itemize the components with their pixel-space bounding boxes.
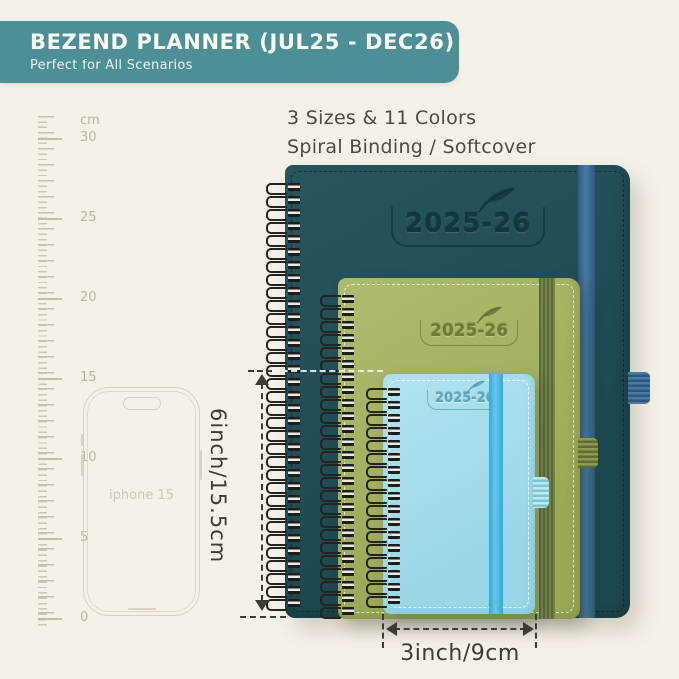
coil-wire-loop: [320, 399, 341, 411]
coil-punch-hole: [342, 594, 354, 602]
spiral-coil: [320, 373, 356, 382]
coil-punch-hole: [342, 607, 354, 615]
phone-outline: iphone 15: [83, 387, 200, 616]
spiral-coil: [366, 453, 402, 462]
coil-wire-loop: [266, 248, 287, 260]
coil-wire-loop: [266, 482, 287, 494]
coil-wire-loop: [366, 414, 387, 426]
spiral-coil: [320, 386, 356, 395]
spiral-coil: [266, 573, 302, 582]
spiral-coil: [320, 607, 356, 616]
spiral-coil: [266, 547, 302, 556]
spiral-coil: [266, 274, 302, 283]
spiral-coil: [320, 438, 356, 447]
spiral-coil: [320, 451, 356, 460]
coil-punch-hole: [288, 222, 300, 230]
ruler-major-tick: 10: [38, 458, 62, 460]
arrow-down-icon: [255, 600, 269, 611]
coil-punch-hole: [388, 388, 400, 396]
spiral-coil: [320, 529, 356, 538]
coil-wire-loop: [366, 479, 387, 491]
spiral-coil: [266, 391, 302, 400]
arrow-up-icon: [255, 374, 269, 385]
phone-volume-button: [81, 454, 84, 476]
coil-wire-loop: [366, 466, 387, 478]
coil-punch-hole: [342, 373, 354, 381]
spiral-coil: [320, 295, 356, 304]
coil-wire-loop: [266, 443, 287, 455]
coil-punch-hole: [388, 518, 400, 526]
coil-punch-hole: [288, 235, 300, 243]
stitching: [389, 380, 529, 608]
coil-wire-loop: [320, 295, 341, 307]
page-title: BEZEND PLANNER (JUL25 - DEC26): [30, 30, 459, 54]
spiral-coil: [320, 555, 356, 564]
spiral-coil: [320, 516, 356, 525]
spiral-coil: [320, 464, 356, 473]
coil-wire-loop: [266, 235, 287, 247]
coil-punch-hole: [342, 386, 354, 394]
coil-wire-loop: [320, 542, 341, 554]
spiral-coil: [320, 321, 356, 330]
spiral-coil: [366, 544, 402, 553]
coil-wire-loop: [266, 456, 287, 468]
year-emboss-medium: 2025-26: [420, 320, 518, 346]
spiral-coil: [320, 399, 356, 408]
spiral-coil: [266, 521, 302, 530]
coil-punch-hole: [342, 464, 354, 472]
coil-wire-loop: [266, 313, 287, 325]
coil-punch-hole: [342, 529, 354, 537]
intro-text: 3 Sizes & 11 Colors Spiral Binding / Sof…: [287, 107, 536, 158]
arrow-right-icon: [523, 622, 534, 636]
coil-wire-loop: [366, 440, 387, 452]
height-dimension-label: 6inch/15.5cm: [206, 408, 230, 588]
spiral-coil: [266, 599, 302, 608]
coil-punch-hole: [342, 321, 354, 329]
coil-wire-loop: [266, 391, 287, 403]
coil-punch-hole: [288, 352, 300, 360]
ruler-label-20: 20: [80, 290, 116, 305]
spiral-coil: [366, 492, 402, 501]
coil-wire-loop: [266, 183, 287, 195]
height-dimension-line: [261, 383, 263, 601]
coil-wire-loop: [320, 581, 341, 593]
spiral-coil: [366, 466, 402, 475]
coil-wire-loop: [366, 531, 387, 543]
spiral-coil: [320, 334, 356, 343]
spiral-coil: [266, 235, 302, 244]
intro-line-binding: Spiral Binding / Softcover: [287, 136, 536, 158]
spiral-coil: [266, 209, 302, 218]
spiral-coil: [366, 427, 402, 436]
coil-punch-hole: [288, 443, 300, 451]
coil-punch-hole: [288, 287, 300, 295]
coil-punch-hole: [288, 560, 300, 568]
spiral-coil: [366, 531, 402, 540]
coil-punch-hole: [342, 438, 354, 446]
coil-wire-loop: [320, 490, 341, 502]
coil-wire-loop: [366, 544, 387, 556]
coil-wire-loop: [320, 503, 341, 515]
coil-wire-loop: [320, 555, 341, 567]
coil-wire-loop: [266, 495, 287, 507]
coil-punch-hole: [342, 399, 354, 407]
coil-wire-loop: [266, 508, 287, 520]
ruler-label-25: 25: [80, 210, 116, 225]
coil-wire-loop: [320, 308, 341, 320]
coil-wire-loop: [266, 560, 287, 572]
spiral-coil: [266, 443, 302, 452]
extension-line-top: [248, 370, 272, 372]
coil-punch-hole: [288, 495, 300, 503]
coil-wire-loop: [320, 607, 341, 619]
coil-wire-loop: [266, 196, 287, 208]
coil-punch-hole: [342, 360, 354, 368]
pen-loop-large: [628, 372, 650, 404]
elastic-band-large: [578, 165, 595, 618]
coil-punch-hole: [342, 555, 354, 563]
coil-wire-loop: [366, 505, 387, 517]
spiral-coil: [320, 490, 356, 499]
spiral-coil: [266, 404, 302, 413]
spiral-coil: [320, 542, 356, 551]
coil-wire-loop: [320, 438, 341, 450]
spiral-coil: [266, 261, 302, 270]
coil-punch-hole: [342, 477, 354, 485]
spiral-coil: [266, 378, 302, 387]
coil-punch-hole: [342, 490, 354, 498]
coil-punch-hole: [288, 404, 300, 412]
spiral-coil: [320, 581, 356, 590]
coil-punch-hole: [388, 414, 400, 422]
phone-power-button: [200, 450, 203, 480]
page-subtitle: Perfect for All Scenarios: [30, 58, 459, 73]
spiral-coil: [266, 586, 302, 595]
coil-punch-hole: [288, 508, 300, 516]
coil-wire-loop: [320, 594, 341, 606]
coil-wire-loop: [266, 521, 287, 533]
coil-wire-loop: [366, 453, 387, 465]
coil-punch-hole: [388, 531, 400, 539]
coil-wire-loop: [266, 378, 287, 390]
spiral-coil: [366, 401, 402, 410]
header-banner: BEZEND PLANNER (JUL25 - DEC26) Perfect f…: [0, 21, 459, 83]
coil-punch-hole: [288, 547, 300, 555]
phone-mute-switch: [81, 434, 84, 446]
ruler-major-tick: 15: [38, 378, 62, 380]
spiral-coil: [366, 518, 402, 527]
coil-wire-loop: [320, 477, 341, 489]
spiral-coil: [266, 430, 302, 439]
spiral-coil: [266, 560, 302, 569]
spiral-coil: [320, 347, 356, 356]
dynamic-island: [123, 397, 161, 410]
coil-punch-hole: [288, 430, 300, 438]
spiral-coil: [266, 495, 302, 504]
coil-punch-hole: [342, 412, 354, 420]
coil-punch-hole: [288, 183, 300, 191]
coil-punch-hole: [288, 339, 300, 347]
coil-wire-loop: [266, 352, 287, 364]
coil-punch-hole: [288, 391, 300, 399]
coil-wire-loop: [320, 386, 341, 398]
coil-wire-loop: [366, 570, 387, 582]
coil-punch-hole: [288, 313, 300, 321]
coil-wire-loop: [266, 417, 287, 429]
spiral-coil: [320, 425, 356, 434]
coil-punch-hole: [388, 427, 400, 435]
ruler-major-tick: 30: [38, 138, 62, 140]
coil-wire-loop: [266, 274, 287, 286]
coil-wire-loop: [266, 430, 287, 442]
coil-wire-loop: [320, 464, 341, 476]
spiral-coil: [320, 594, 356, 603]
coil-punch-hole: [288, 248, 300, 256]
spiral-coil: [266, 534, 302, 543]
spiral-coil: [320, 503, 356, 512]
ruler-major-tick: 20: [38, 298, 62, 300]
coil-punch-hole: [288, 378, 300, 386]
spiral-coil: [266, 300, 302, 309]
spiral-coil: [366, 583, 402, 592]
coil-wire-loop: [266, 222, 287, 234]
coil-punch-hole: [288, 469, 300, 477]
arrow-left-icon: [386, 622, 397, 636]
pen-loop-small: [533, 477, 549, 508]
coil-wire-loop: [266, 209, 287, 221]
coil-wire-loop: [320, 373, 341, 385]
coil-wire-loop: [266, 534, 287, 546]
spiral-coil: [266, 313, 302, 322]
coil-wire-loop: [320, 529, 341, 541]
coil-punch-hole: [342, 516, 354, 524]
ruler-major-tick: 0: [38, 618, 62, 620]
spiral-coil: [266, 326, 302, 335]
spiral-coil: [366, 414, 402, 423]
coil-punch-hole: [388, 479, 400, 487]
coil-wire-loop: [266, 573, 287, 585]
coil-punch-hole: [388, 557, 400, 565]
coil-wire-loop: [266, 261, 287, 273]
coil-wire-loop: [320, 334, 341, 346]
coil-punch-hole: [388, 440, 400, 448]
coil-punch-hole: [342, 425, 354, 433]
spiral-coil: [266, 469, 302, 478]
coil-punch-hole: [388, 466, 400, 474]
coil-wire-loop: [266, 547, 287, 559]
planner-small-cover: 2025-26: [383, 374, 535, 614]
coil-wire-loop: [266, 326, 287, 338]
spiral-coil: [266, 183, 302, 192]
coil-wire-loop: [366, 492, 387, 504]
coil-wire-loop: [320, 425, 341, 437]
spiral-coil: [266, 456, 302, 465]
spiral-coil: [320, 568, 356, 577]
coil-wire-loop: [366, 427, 387, 439]
elastic-band-medium: [539, 278, 555, 619]
coil-punch-hole: [342, 542, 354, 550]
extension-line-bottom: [240, 616, 286, 618]
spiral-coil: [366, 479, 402, 488]
coil-punch-hole: [288, 456, 300, 464]
coil-wire-loop: [320, 347, 341, 359]
spiral-coil: [320, 477, 356, 486]
spiral-coil: [266, 248, 302, 257]
extension-line-top-light: [272, 370, 383, 372]
spiral-coil: [366, 570, 402, 579]
spiral-coil: [366, 440, 402, 449]
spiral-coil: [266, 417, 302, 426]
spiral-coil: [320, 360, 356, 369]
spiral-coil: [266, 196, 302, 205]
spiral-coil: [266, 287, 302, 296]
coil-punch-hole: [288, 521, 300, 529]
spiral-coil: [266, 482, 302, 491]
coil-punch-hole: [342, 347, 354, 355]
intro-line-sizes: 3 Sizes & 11 Colors: [287, 107, 536, 129]
coil-punch-hole: [388, 401, 400, 409]
coil-wire-loop: [266, 300, 287, 312]
coil-wire-loop: [266, 404, 287, 416]
year-emboss-large: 2025-26: [391, 207, 545, 247]
coil-wire-loop: [366, 518, 387, 530]
coil-wire-loop: [320, 568, 341, 580]
spiral-coil: [366, 557, 402, 566]
coil-wire-loop: [366, 557, 387, 569]
spiral-coil: [266, 339, 302, 348]
coil-punch-hole: [388, 505, 400, 513]
coil-punch-hole: [288, 599, 300, 607]
coil-punch-hole: [288, 482, 300, 490]
phone-port: [128, 608, 156, 610]
coil-punch-hole: [342, 503, 354, 511]
product-image: BEZEND PLANNER (JUL25 - DEC26) Perfect f…: [0, 0, 679, 679]
coil-punch-hole: [288, 534, 300, 542]
coil-wire-loop: [320, 451, 341, 463]
coil-punch-hole: [342, 334, 354, 342]
elastic-band-small: [489, 374, 503, 614]
coil-wire-loop: [266, 287, 287, 299]
spiral-coil: [366, 596, 402, 605]
coil-punch-hole: [288, 261, 300, 269]
ruler-medium-ticks: [38, 116, 54, 626]
coil-punch-hole: [388, 492, 400, 500]
coil-punch-hole: [388, 453, 400, 461]
pen-loop-medium: [578, 438, 598, 468]
spiral-coil: [266, 508, 302, 517]
coil-wire-loop: [320, 412, 341, 424]
spiral-coil: [320, 412, 356, 421]
ruler-major-tick: 5: [38, 538, 62, 540]
coil-punch-hole: [288, 196, 300, 204]
ruler-label-15: 15: [80, 370, 116, 385]
coil-punch-hole: [288, 274, 300, 282]
coil-wire-loop: [366, 583, 387, 595]
ruler-major-tick: 25: [38, 218, 62, 220]
spiral-coil: [320, 308, 356, 317]
coil-punch-hole: [288, 573, 300, 581]
coil-wire-loop: [320, 516, 341, 528]
coil-punch-hole: [388, 596, 400, 604]
coil-punch-hole: [342, 295, 354, 303]
coil-punch-hole: [388, 583, 400, 591]
coil-punch-hole: [388, 570, 400, 578]
coil-wire-loop: [266, 469, 287, 481]
coil-punch-hole: [288, 326, 300, 334]
coil-wire-loop: [366, 596, 387, 608]
spiral-coil: [366, 388, 402, 397]
coil-punch-hole: [342, 581, 354, 589]
coil-punch-hole: [288, 209, 300, 217]
phone-label: iphone 15: [84, 488, 199, 503]
coil-punch-hole: [288, 300, 300, 308]
width-dimension-line: [394, 628, 526, 630]
spiral-coil: [266, 352, 302, 361]
coil-punch-hole: [342, 568, 354, 576]
ruler-label-30: 30: [80, 130, 116, 145]
width-dimension-label: 3inch/9cm: [378, 641, 542, 666]
spiral-coil: [266, 222, 302, 231]
coil-wire-loop: [266, 586, 287, 598]
coil-wire-loop: [366, 401, 387, 413]
coil-punch-hole: [288, 417, 300, 425]
coil-punch-hole: [342, 308, 354, 316]
coil-punch-hole: [288, 586, 300, 594]
coil-wire-loop: [366, 388, 387, 400]
coil-wire-loop: [266, 599, 287, 611]
coil-punch-hole: [388, 544, 400, 552]
ruler-unit-label: cm: [80, 113, 100, 128]
coil-wire-loop: [320, 321, 341, 333]
coil-punch-hole: [342, 451, 354, 459]
coil-wire-loop: [266, 339, 287, 351]
spiral-coil: [366, 505, 402, 514]
